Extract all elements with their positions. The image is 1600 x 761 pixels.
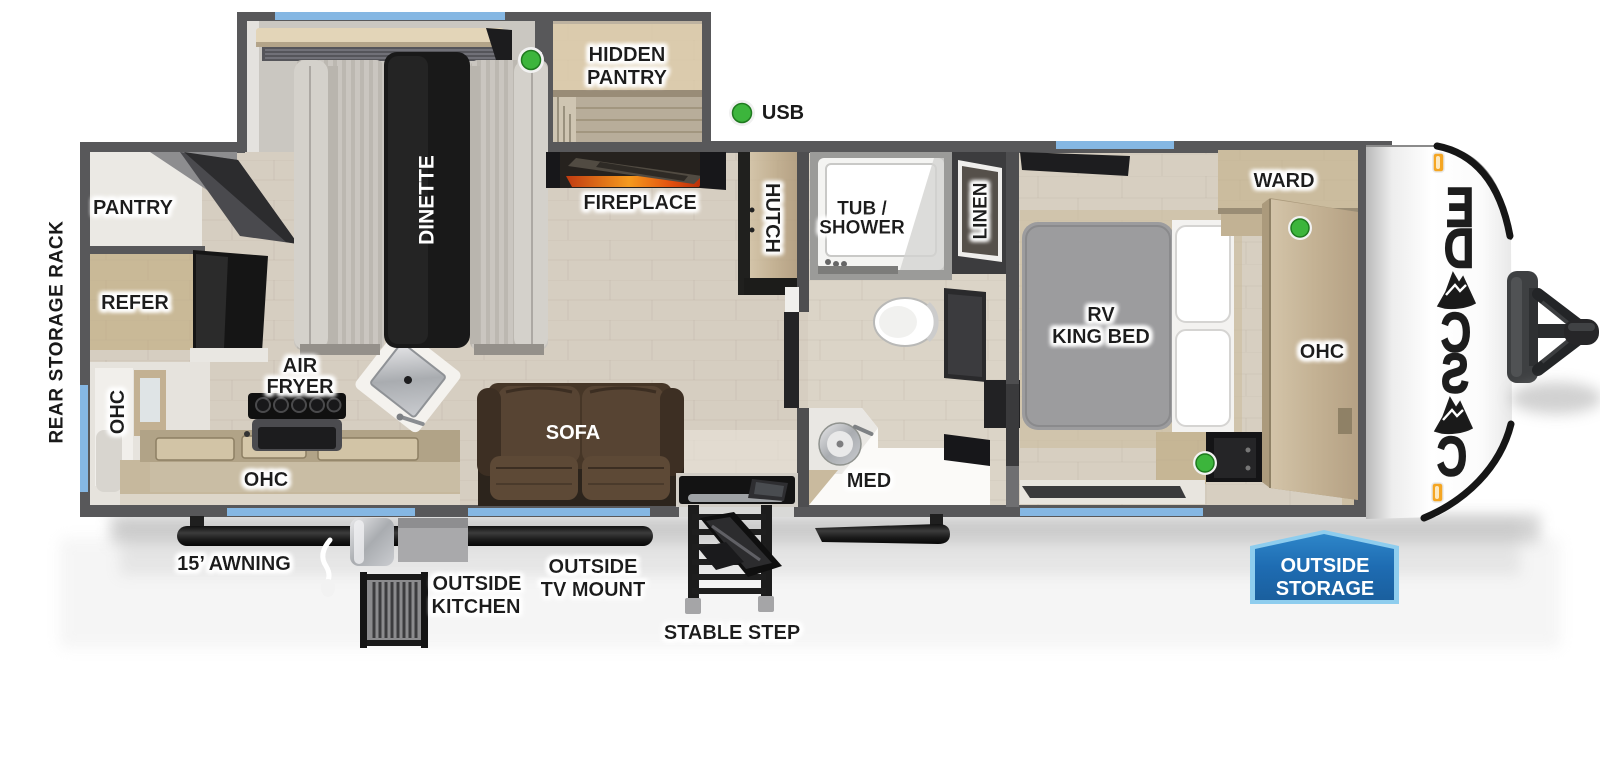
svg-text:PANTRY: PANTRY [587,67,668,89]
svg-text:OUTSIDE: OUTSIDE [549,556,638,578]
svg-text:OHC: OHC [107,390,129,434]
svg-text:LINEN: LINEN [971,183,992,240]
svg-text:TUB /: TUB / [837,199,887,220]
svg-text:S: S [1441,343,1469,405]
svg-text:WARD: WARD [1253,170,1314,192]
svg-text:REFER: REFER [101,292,169,314]
svg-text:PANTRY: PANTRY [93,197,174,219]
svg-text:D: D [1444,218,1474,280]
svg-text:OUTSIDE: OUTSIDE [433,573,522,595]
svg-text:STORAGE: STORAGE [1276,578,1375,600]
svg-text:AIR: AIR [283,355,318,377]
svg-text:KITCHEN: KITCHEN [432,596,521,618]
svg-text:REAR STORAGE RACK: REAR STORAGE RACK [47,220,68,443]
svg-text:HIDDEN: HIDDEN [589,44,666,66]
svg-text:C: C [1437,426,1467,488]
svg-text:TV MOUNT: TV MOUNT [541,579,645,601]
svg-text:HUTCH: HUTCH [761,183,783,253]
svg-text:FIREPLACE: FIREPLACE [583,192,696,214]
svg-text:SHOWER: SHOWER [819,218,905,239]
svg-text:STABLE STEP: STABLE STEP [664,622,800,644]
svg-text:OHC: OHC [244,469,288,491]
svg-text:MED: MED [847,470,891,492]
svg-text:SOFA: SOFA [546,422,600,444]
svg-text:KING BED: KING BED [1052,326,1150,348]
svg-text:OHC: OHC [1300,341,1344,363]
svg-text:RV: RV [1087,304,1115,326]
svg-text:DINETTE: DINETTE [416,155,439,245]
svg-text:15’ AWNING: 15’ AWNING [177,553,291,575]
svg-text:FRYER: FRYER [266,376,334,398]
svg-text:OUTSIDE: OUTSIDE [1281,555,1370,577]
svg-text:USB: USB [762,102,804,124]
